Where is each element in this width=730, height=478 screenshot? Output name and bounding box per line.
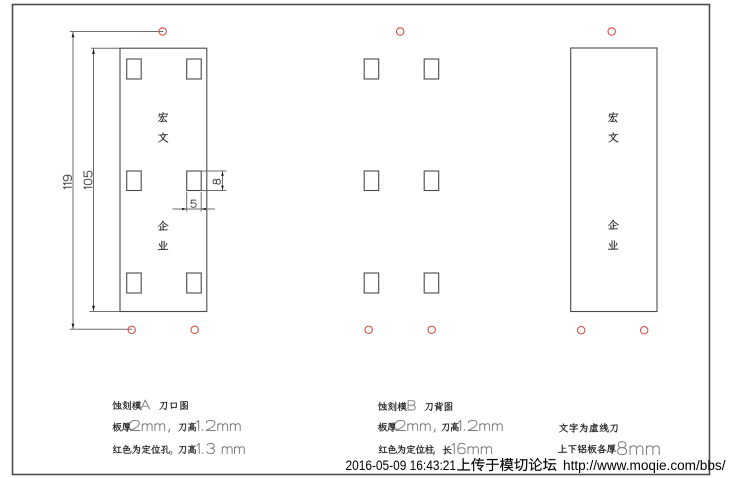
svg-text:http://www.moqie.com/bbs/: http://www.moqie.com/bbs/	[563, 458, 726, 474]
svg-text:2016-05-09 16:43:21: 2016-05-09 16:43:21	[346, 458, 457, 474]
